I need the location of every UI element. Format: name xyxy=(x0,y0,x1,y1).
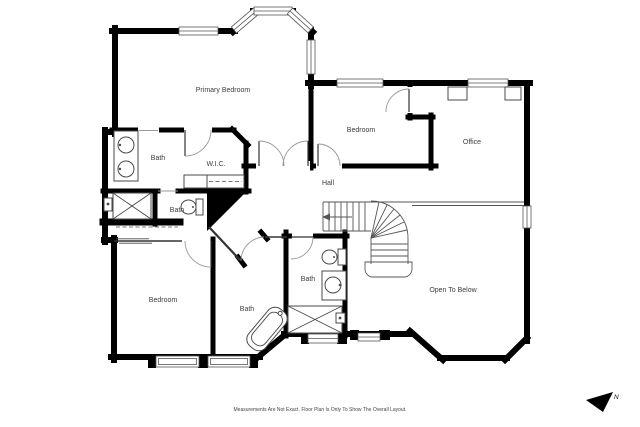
window xyxy=(523,206,531,228)
window xyxy=(468,79,508,87)
room-label-hall: Hall xyxy=(322,180,335,187)
toilet-fixture xyxy=(181,199,203,215)
shower-fixture xyxy=(104,193,151,219)
bay-window-right xyxy=(287,8,313,33)
bay-window-center xyxy=(254,7,292,15)
room-label-bedroom-top: Bedroom xyxy=(347,127,376,134)
floor-plan-svg: Primary Bedroom Bedroom Office Bath W.I.… xyxy=(0,0,640,427)
bath-bottom-door xyxy=(241,237,264,261)
disclaimer-text: Measurements Are Not Exact. Floor Plan I… xyxy=(234,407,407,413)
bedroom-bottom-windows xyxy=(148,354,258,368)
office-column-fixture xyxy=(448,87,521,100)
room-label-bath-left: Bath xyxy=(170,207,185,214)
bedroom-bottom-door xyxy=(183,237,211,267)
staircase xyxy=(322,201,524,277)
room-label-bath-bottom: Bath xyxy=(240,306,255,313)
office-door xyxy=(386,87,415,113)
sink-vanity-fixture xyxy=(322,271,346,300)
room-label-bath-middle: Bath xyxy=(301,276,316,283)
window xyxy=(179,27,218,35)
shower-fixture xyxy=(288,306,345,333)
window xyxy=(337,79,383,87)
room-label-bath-primary: Bath xyxy=(151,155,166,162)
stair-bullnose xyxy=(365,262,412,277)
floor-plan-page: Primary Bedroom Bedroom Office Bath W.I.… xyxy=(0,0,640,427)
bath-middle-door xyxy=(291,231,313,259)
bedroom-top-door xyxy=(316,144,342,171)
room-label-primary-bedroom: Primary Bedroom xyxy=(196,87,251,94)
angled-wall-fill xyxy=(207,189,249,231)
north-arrow-icon: N xyxy=(586,392,619,412)
toilet-fixture xyxy=(322,249,346,265)
room-label-bedroom-bottom: Bedroom xyxy=(149,297,178,304)
wic-shelf-fixture xyxy=(184,175,244,188)
wic-door xyxy=(184,125,212,156)
north-label: N xyxy=(614,394,619,401)
double-vanity-fixture xyxy=(114,131,138,181)
primary-bedroom-double-door xyxy=(256,141,310,171)
room-label-open-to-below: Open To Below xyxy=(429,287,477,294)
room-label-wic: W.I.C. xyxy=(206,161,225,168)
window xyxy=(307,40,315,74)
room-label-office: Office xyxy=(463,139,481,146)
